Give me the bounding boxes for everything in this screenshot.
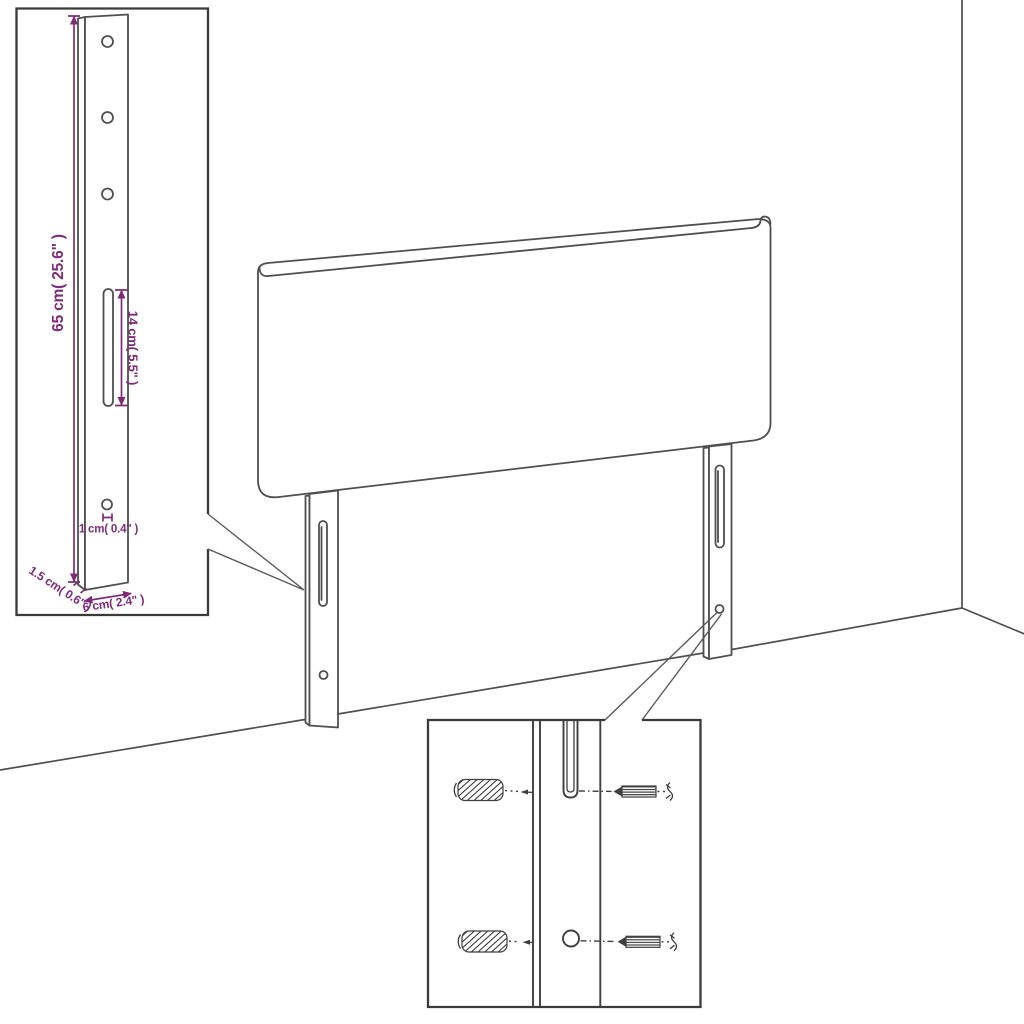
dim-label-leg-width: 6 cm( 2.4" ) (82, 592, 146, 615)
headboard-panel (258, 217, 771, 498)
product-diagram-canvas: 65 cm( 25.6" ) 14 cm( 5.5" ) 1 cm( 0.4" … (0, 0, 1024, 1024)
wall-plug-icon (458, 931, 507, 952)
dimension-callout-pointer (208, 514, 304, 590)
left-leg-front-face (310, 491, 339, 728)
hardware-leg-strip (533, 721, 600, 1006)
right-leg (704, 444, 732, 659)
wall-plug-icon (454, 780, 503, 801)
floor-line-left (0, 608, 962, 770)
screw-icon (618, 933, 677, 951)
strip-slot-inner (567, 721, 574, 792)
hardware-wall-plugs (454, 780, 533, 953)
screw-icon (614, 783, 673, 801)
plug-arrow-lower (523, 940, 531, 945)
left-leg (306, 491, 339, 728)
hardware-callout-box (428, 612, 722, 1007)
hardware-screws (579, 783, 677, 951)
callout-leg-side-face (78, 17, 85, 590)
headboard-dimension-diagram: 65 cm( 25.6" ) 14 cm( 5.5" ) 1 cm( 0.4" … (0, 0, 1024, 1024)
callout-leg-drawing (78, 15, 128, 591)
plug-leader-upper (505, 791, 518, 792)
screw-leader-lower (581, 941, 616, 942)
dim-label-leg-height: 65 cm( 25.6" ) (50, 234, 67, 332)
plug-arrow-upper (521, 790, 529, 795)
floor-line-right (962, 608, 1024, 634)
strip-slot-outer (564, 721, 578, 798)
dim-label-slot-length: 14 cm( 5.5" ) (126, 311, 141, 385)
strip-hole (563, 931, 579, 947)
headboard-front-face (258, 219, 771, 497)
dim-label-hole-offset: 1 cm( 0.4" ) (79, 524, 139, 536)
plug-leader-lower (509, 941, 520, 942)
